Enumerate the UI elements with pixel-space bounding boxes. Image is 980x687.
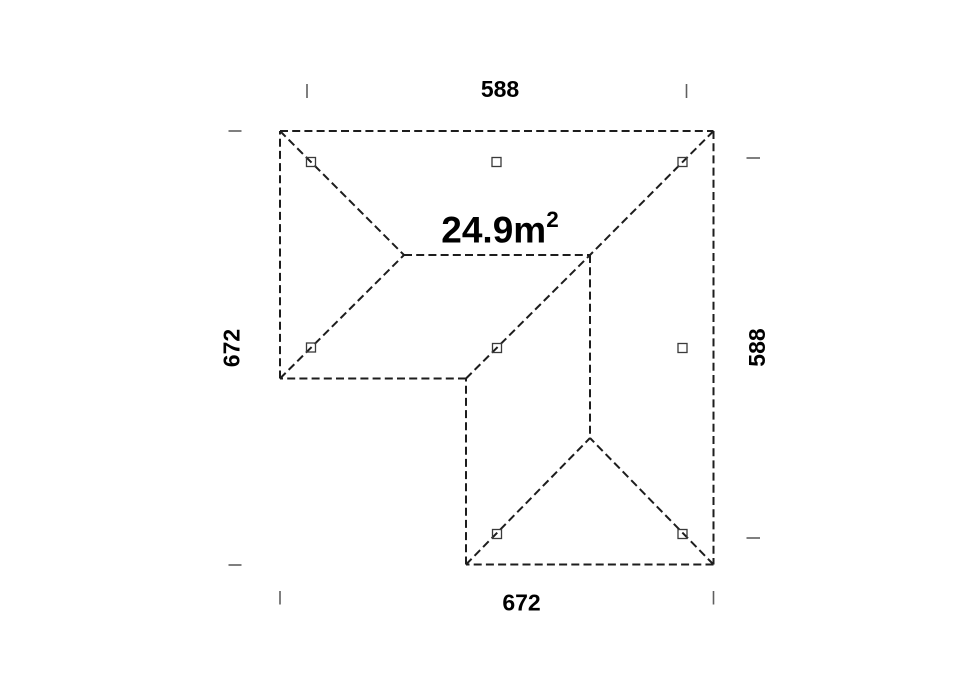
svg-text:672: 672 (502, 590, 540, 616)
svg-text:24.9m2: 24.9m2 (441, 207, 558, 251)
svg-text:672: 672 (219, 329, 245, 367)
svg-text:588: 588 (481, 76, 520, 102)
svg-text:588: 588 (744, 328, 770, 367)
